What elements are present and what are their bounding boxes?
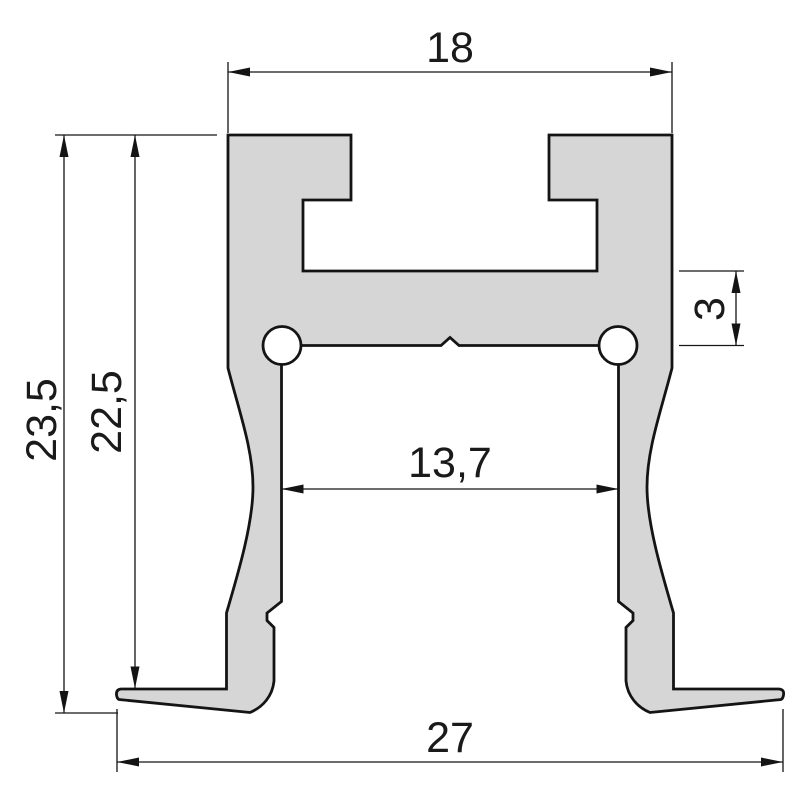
dim-overall-height-label: 23,5 [18,378,66,462]
arrowhead-right [597,485,619,494]
technical-drawing: 18 23,5 22,5 3 13,7 27 [0,0,800,800]
arrowhead-right [650,68,672,77]
dim-inner-width-label: 13,7 [408,439,492,487]
screw-hole-right [599,327,637,365]
profile-section [116,135,783,713]
arrowhead-down [732,324,741,346]
dim-web-thickness-label: 3 [686,297,734,321]
dim-top-width: 18 [228,24,672,133]
dim-top-width-label: 18 [426,24,474,72]
dim-overall-width: 27 [117,709,783,772]
dim-overall-width-label: 27 [426,714,474,762]
arrowhead-up [60,135,69,157]
drawing-canvas: 18 23,5 22,5 3 13,7 27 [0,0,800,800]
arrowhead-left [282,485,304,494]
arrowhead-down [60,691,69,713]
arrowhead-up [131,135,140,157]
dim-inner-height-label: 22,5 [83,370,131,454]
dim-web-thickness: 3 [679,271,744,346]
dim-inner-height: 22,5 [83,135,140,689]
dim-inner-width: 13,7 [282,439,619,494]
arrowhead-down [131,667,140,689]
arrowhead-up [732,271,741,293]
screw-hole-left [263,327,301,365]
arrowhead-left [117,758,139,767]
profile-outline [116,135,783,713]
arrowhead-left [228,68,250,77]
arrowhead-right [761,758,783,767]
